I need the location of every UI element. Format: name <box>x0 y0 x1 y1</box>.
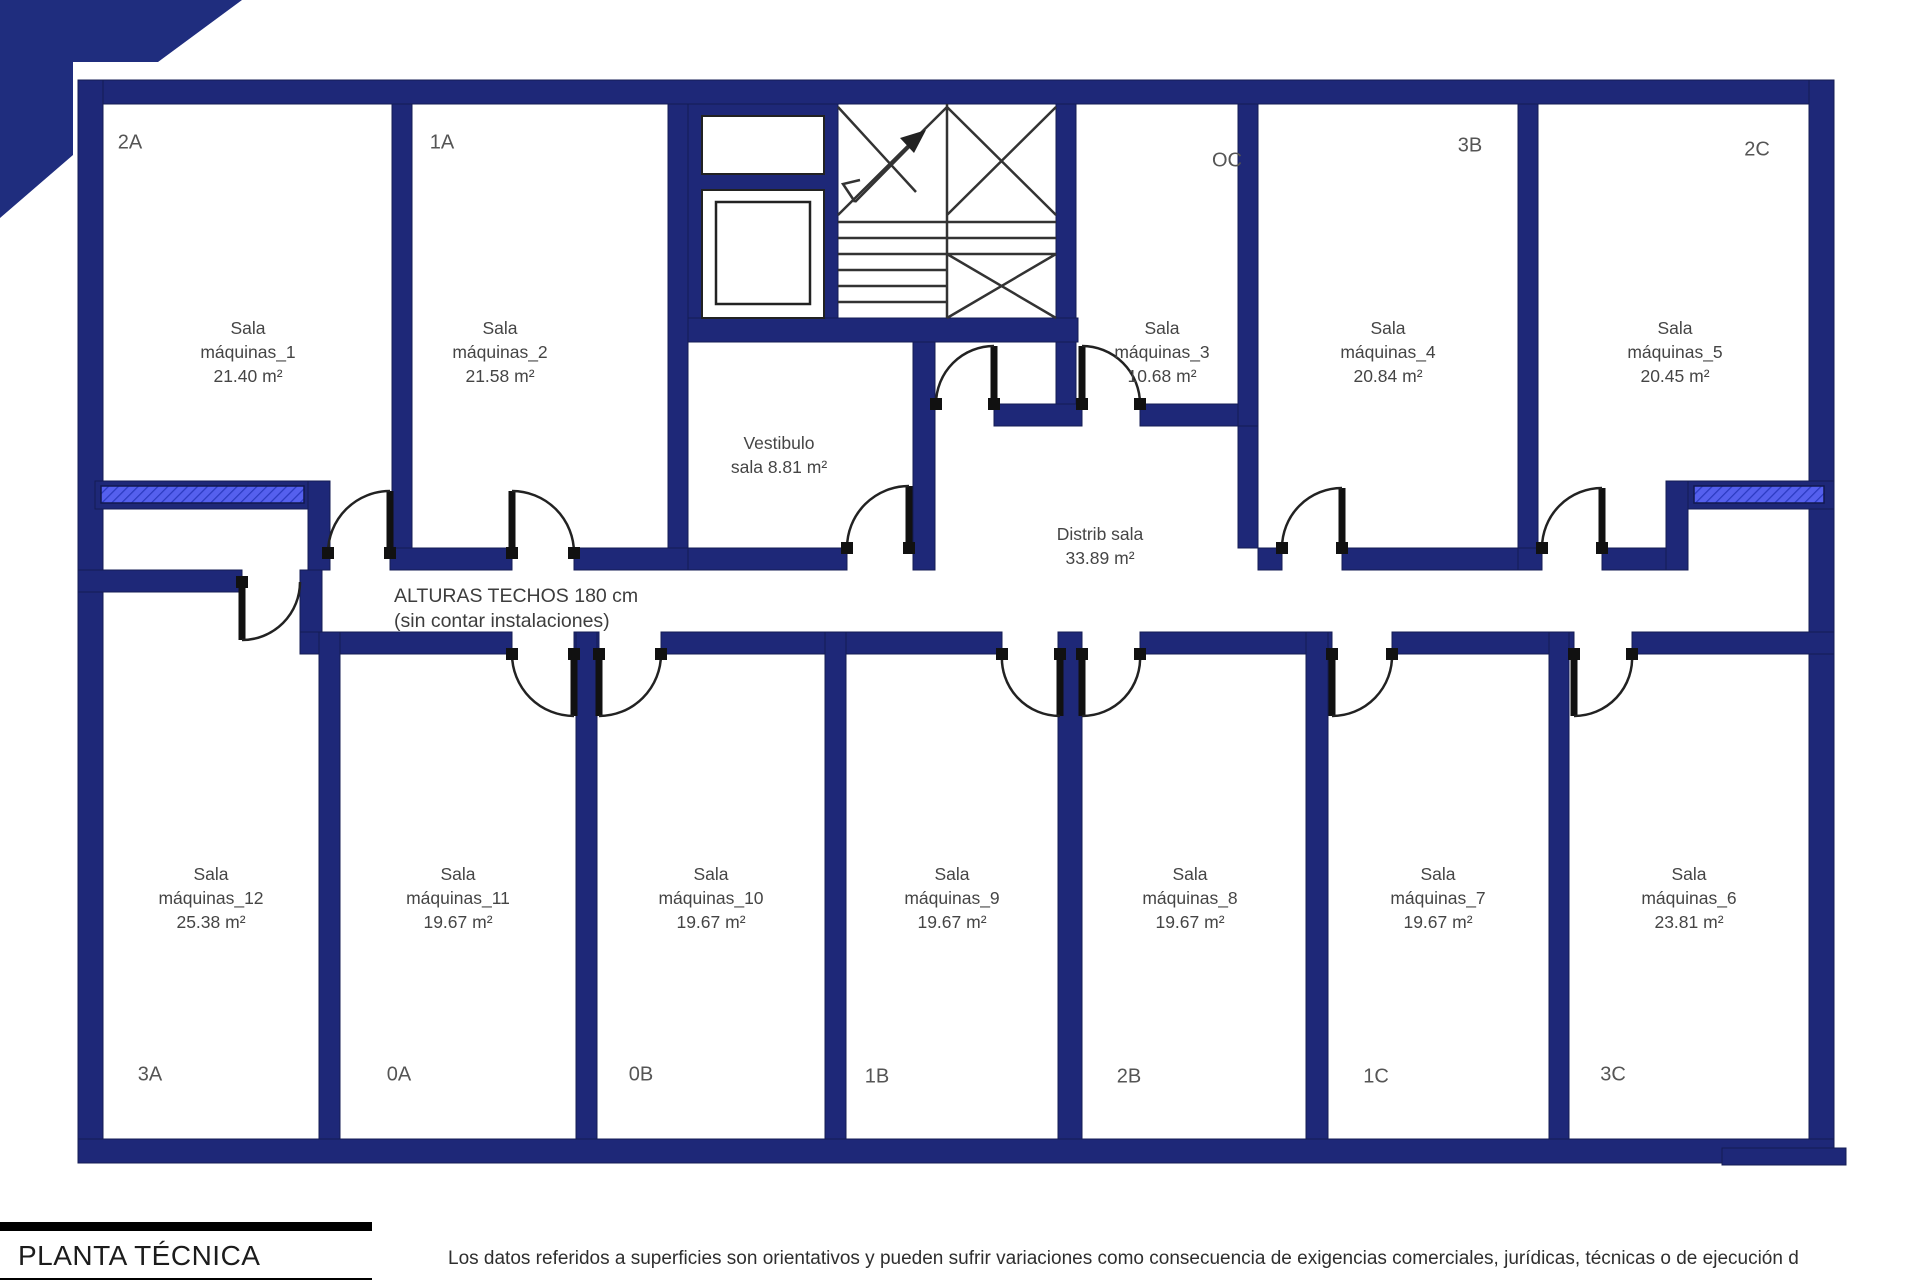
disclaimer-text: Los datos referidos a superficies son or… <box>448 1248 1920 1270</box>
elevator <box>702 116 824 318</box>
floor-plan-page: 2A 1A OC 3B 2C 3C 1C 2B 1B 0B 0A 3A Sala… <box>0 0 1920 1280</box>
room-label-maquinas-11: Salamáquinas_1119.67 m² <box>406 862 510 934</box>
unit-label-2a: 2A <box>118 132 142 155</box>
room-label-maquinas-2: Salamáquinas_221.58 m² <box>452 316 547 388</box>
unit-label-1a: 1A <box>430 132 454 155</box>
vestibule-label: Vestibulosala 8.81 m² <box>731 431 827 479</box>
unit-label-2c: 2C <box>1744 139 1770 162</box>
staircase <box>838 104 1056 318</box>
unit-label-2b: 2B <box>1117 1066 1141 1089</box>
unit-label-0b: 0B <box>629 1064 653 1087</box>
unit-label-oc: OC <box>1212 150 1242 173</box>
unit-label-1b: 1B <box>865 1066 889 1089</box>
doors <box>236 346 1638 716</box>
room-label-maquinas-5: Salamáquinas_520.45 m² <box>1627 316 1722 388</box>
page-title: PLANTA TÉCNICA <box>18 1240 372 1272</box>
room-label-maquinas-9: Salamáquinas_919.67 m² <box>904 862 999 934</box>
corridor-label: Distrib sala33.89 m² <box>1057 522 1144 570</box>
unit-label-3a: 3A <box>138 1064 162 1087</box>
room-label-maquinas-1: Salamáquinas_121.40 m² <box>200 316 295 388</box>
title-block-top-rule <box>0 1222 372 1231</box>
room-label-maquinas-6: Salamáquinas_623.81 m² <box>1641 862 1736 934</box>
unit-label-1c: 1C <box>1363 1066 1389 1089</box>
corner-banner <box>0 0 242 218</box>
unit-label-3b: 3B <box>1458 135 1482 158</box>
room-label-maquinas-7: Salamáquinas_719.67 m² <box>1390 862 1485 934</box>
ceiling-height-note: ALTURAS TECHOS 180 cm(sin contar instala… <box>394 584 638 634</box>
room-label-maquinas-4: Salamáquinas_420.84 m² <box>1340 316 1435 388</box>
room-label-maquinas-10: Salamáquinas_1019.67 m² <box>658 862 763 934</box>
walls <box>78 80 1846 1165</box>
room-label-maquinas-3: Salamáquinas_310.68 m² <box>1114 316 1209 388</box>
room-label-maquinas-8: Salamáquinas_819.67 m² <box>1142 862 1237 934</box>
floor-plan-drawing <box>0 0 1920 1280</box>
room-label-maquinas-12: Salamáquinas_1225.38 m² <box>158 862 263 934</box>
unit-label-3c: 3C <box>1600 1064 1626 1087</box>
unit-label-0a: 0A <box>387 1064 411 1087</box>
